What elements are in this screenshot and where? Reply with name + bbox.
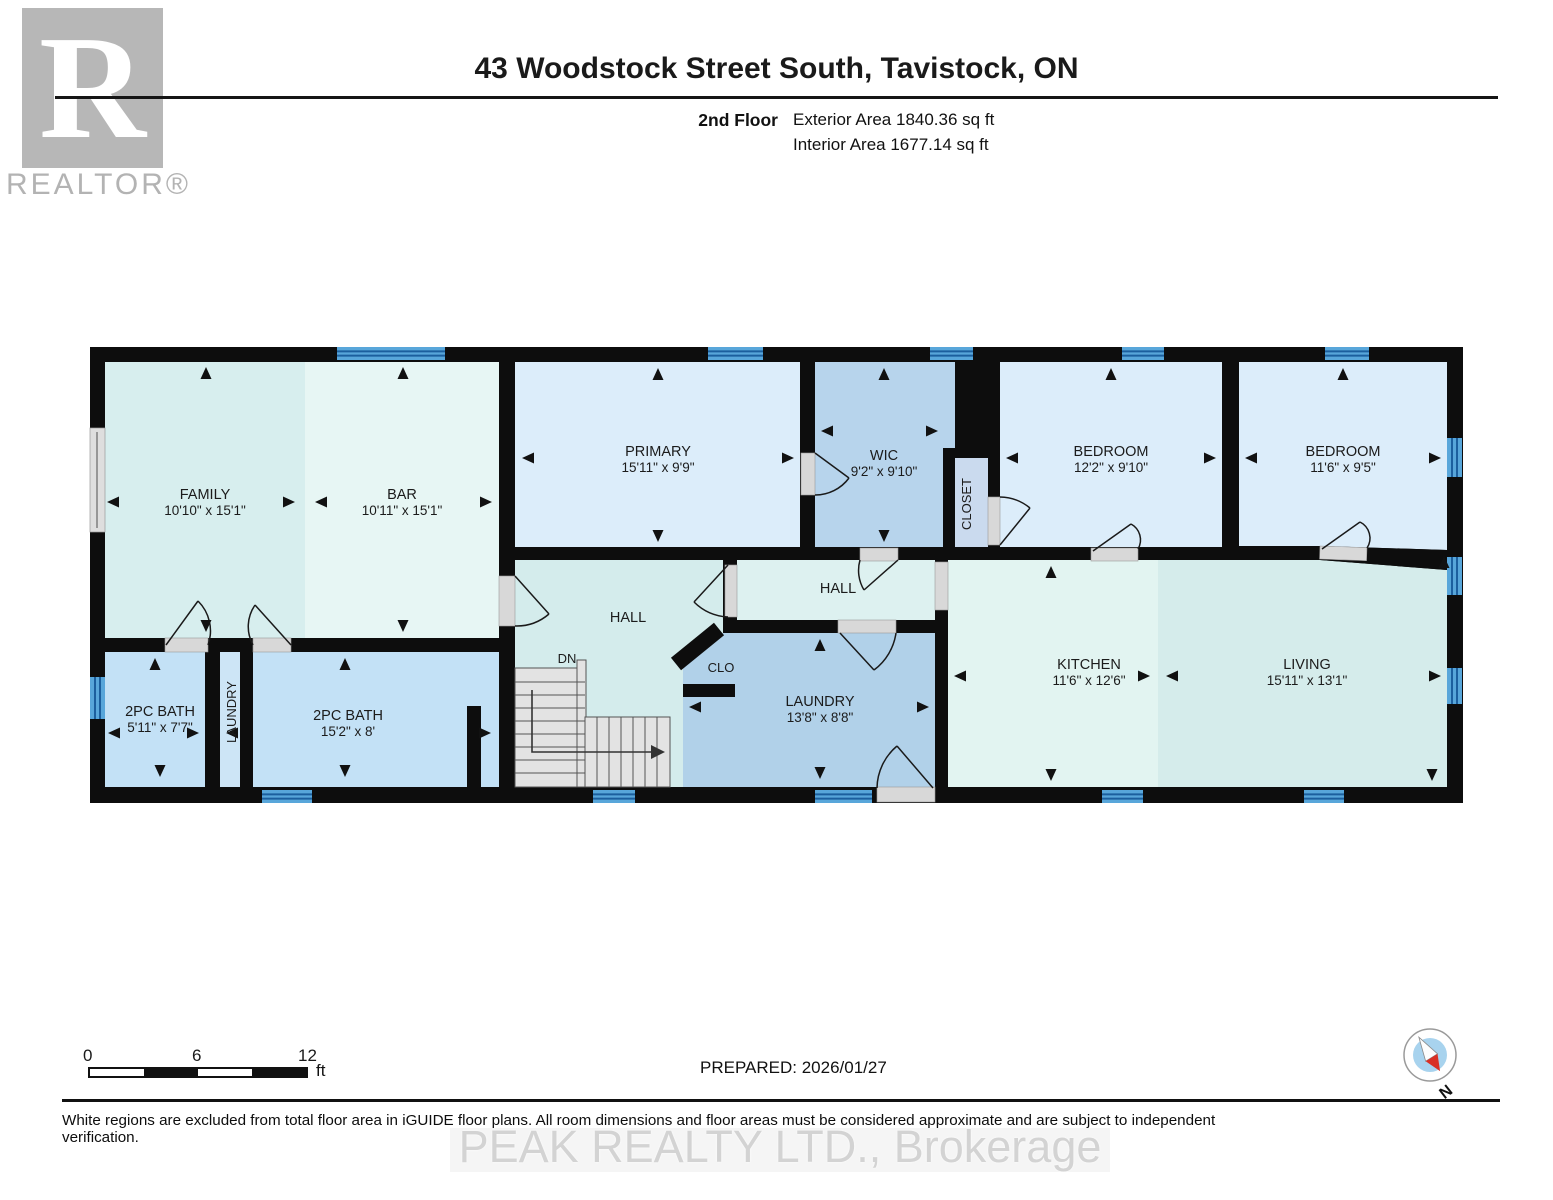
room-label-bedroom2: BEDROOM — [1306, 444, 1381, 460]
room-label-hall1: HALL — [610, 610, 646, 626]
room-dims-bath-small: 5'11" x 7'7" — [127, 720, 193, 735]
room-label-bar: BAR — [387, 487, 417, 503]
room-label-closet: CLOSET — [959, 478, 974, 530]
scale-bar — [88, 1067, 308, 1078]
room-dims-wic: 9'2" x 9'10" — [851, 464, 918, 479]
room-label-wic: WIC — [870, 448, 898, 464]
room-label-laundry: LAUNDRY — [785, 694, 854, 710]
scale-tick-6: 6 — [192, 1046, 201, 1066]
room-dims-kitchen: 11'6" x 12'6" — [1052, 673, 1125, 688]
room-dims-primary: 15'11" x 9'9" — [621, 460, 694, 475]
room-dims-family: 10'10" x 15'1" — [164, 503, 246, 518]
footer-divider — [62, 1099, 1500, 1102]
room-dims-bedroom1: 12'2" x 9'10" — [1074, 460, 1148, 475]
room-label-living: LIVING — [1283, 657, 1331, 673]
room-label-bath-big: 2PC BATH — [313, 708, 383, 724]
left-wall-opening — [90, 428, 105, 532]
room-dims-living: 15'11" x 13'1" — [1267, 673, 1348, 688]
room-label-primary: PRIMARY — [625, 444, 691, 460]
brokerage-watermark: PEAK REALTY LTD., Brokerage — [380, 1121, 1180, 1173]
room-label-laundry-closet: LAUNDRY — [224, 681, 239, 743]
room-dims-bar: 10'11" x 15'1" — [362, 503, 443, 518]
scale-tick-12: 12 — [298, 1046, 317, 1066]
room-dims-bath-big: 15'2" x 8' — [321, 724, 375, 739]
scale-unit: ft — [316, 1061, 325, 1081]
room-label-clo: CLO — [708, 660, 735, 675]
stairs-dn-label: DN — [558, 651, 577, 666]
room-label-bath-small: 2PC BATH — [125, 704, 195, 720]
compass-icon: N — [1404, 1029, 1456, 1103]
room-dims-bedroom2: 11'6" x 9'5" — [1310, 460, 1376, 475]
room-fills — [105, 362, 1447, 787]
floor-plan: FAMILY 10'10" x 15'1" BAR 10'11" x 15'1"… — [0, 0, 1553, 1200]
room-label-bedroom1: BEDROOM — [1074, 444, 1149, 460]
scale-tick-0: 0 — [83, 1046, 92, 1066]
room-label-family: FAMILY — [180, 487, 231, 503]
room-label-kitchen: KITCHEN — [1057, 657, 1121, 673]
room-dims-laundry: 13'8" x 8'8" — [787, 710, 854, 725]
room-label-hall2: HALL — [820, 581, 856, 597]
prepared-date: PREPARED: 2026/01/27 — [700, 1058, 887, 1078]
